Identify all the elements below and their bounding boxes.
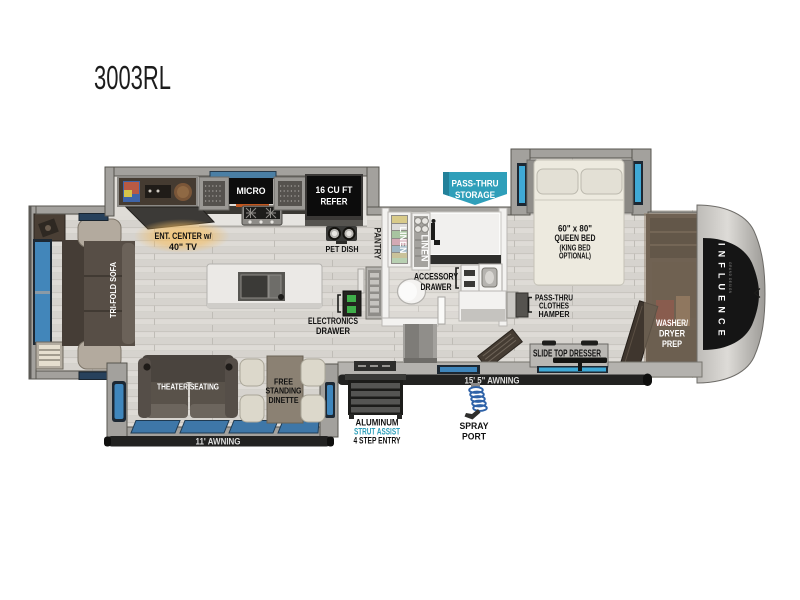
svg-text:THEATER SEATING: THEATER SEATING xyxy=(157,382,219,392)
svg-text:OPTIONAL): OPTIONAL) xyxy=(559,252,591,261)
svg-text:HAMPER: HAMPER xyxy=(539,309,571,319)
svg-text:PET DISH: PET DISH xyxy=(326,244,359,254)
svg-text:LINEN: LINEN xyxy=(398,227,408,254)
svg-text:MICRO: MICRO xyxy=(237,186,266,196)
svg-text:TRI-FOLD SOFA: TRI-FOLD SOFA xyxy=(108,262,118,318)
svg-text:11' AWNING: 11' AWNING xyxy=(196,437,241,447)
svg-text:ENT. CENTER w/: ENT. CENTER w/ xyxy=(155,230,212,241)
svg-text:PASS-THRU: PASS-THRU xyxy=(452,179,499,189)
svg-text:PORT: PORT xyxy=(462,432,486,442)
svg-text:GRAND DESIGN: GRAND DESIGN xyxy=(728,262,732,294)
svg-text:40" TV: 40" TV xyxy=(169,241,198,252)
svg-text:DRAWER: DRAWER xyxy=(421,282,452,292)
svg-text:STORAGE: STORAGE xyxy=(455,190,495,200)
svg-text:ACCESSORY: ACCESSORY xyxy=(414,272,458,282)
svg-text:DRYER: DRYER xyxy=(659,329,686,339)
svg-text:DRAWER: DRAWER xyxy=(316,326,351,336)
svg-text:DINETTE: DINETTE xyxy=(269,395,299,405)
svg-text:SPRAY: SPRAY xyxy=(460,421,489,431)
svg-text:PREP: PREP xyxy=(662,339,682,349)
svg-text:3003RL: 3003RL xyxy=(94,59,171,96)
svg-text:SLIDE TOP DRESSER: SLIDE TOP DRESSER xyxy=(533,349,601,360)
svg-text:QUEEN BED: QUEEN BED xyxy=(555,233,596,244)
svg-text:4 STEP ENTRY: 4 STEP ENTRY xyxy=(354,436,401,446)
svg-text:REFER: REFER xyxy=(321,197,348,207)
svg-text:WASHER/: WASHER/ xyxy=(656,318,688,328)
svg-text:LINEN: LINEN xyxy=(420,235,430,262)
svg-text:PANTRY: PANTRY xyxy=(373,228,383,260)
svg-text:INFLUENCE: INFLUENCE xyxy=(717,243,727,341)
svg-text:16 CU FT: 16 CU FT xyxy=(316,185,353,195)
svg-text:ELECTRONICS: ELECTRONICS xyxy=(308,316,358,326)
